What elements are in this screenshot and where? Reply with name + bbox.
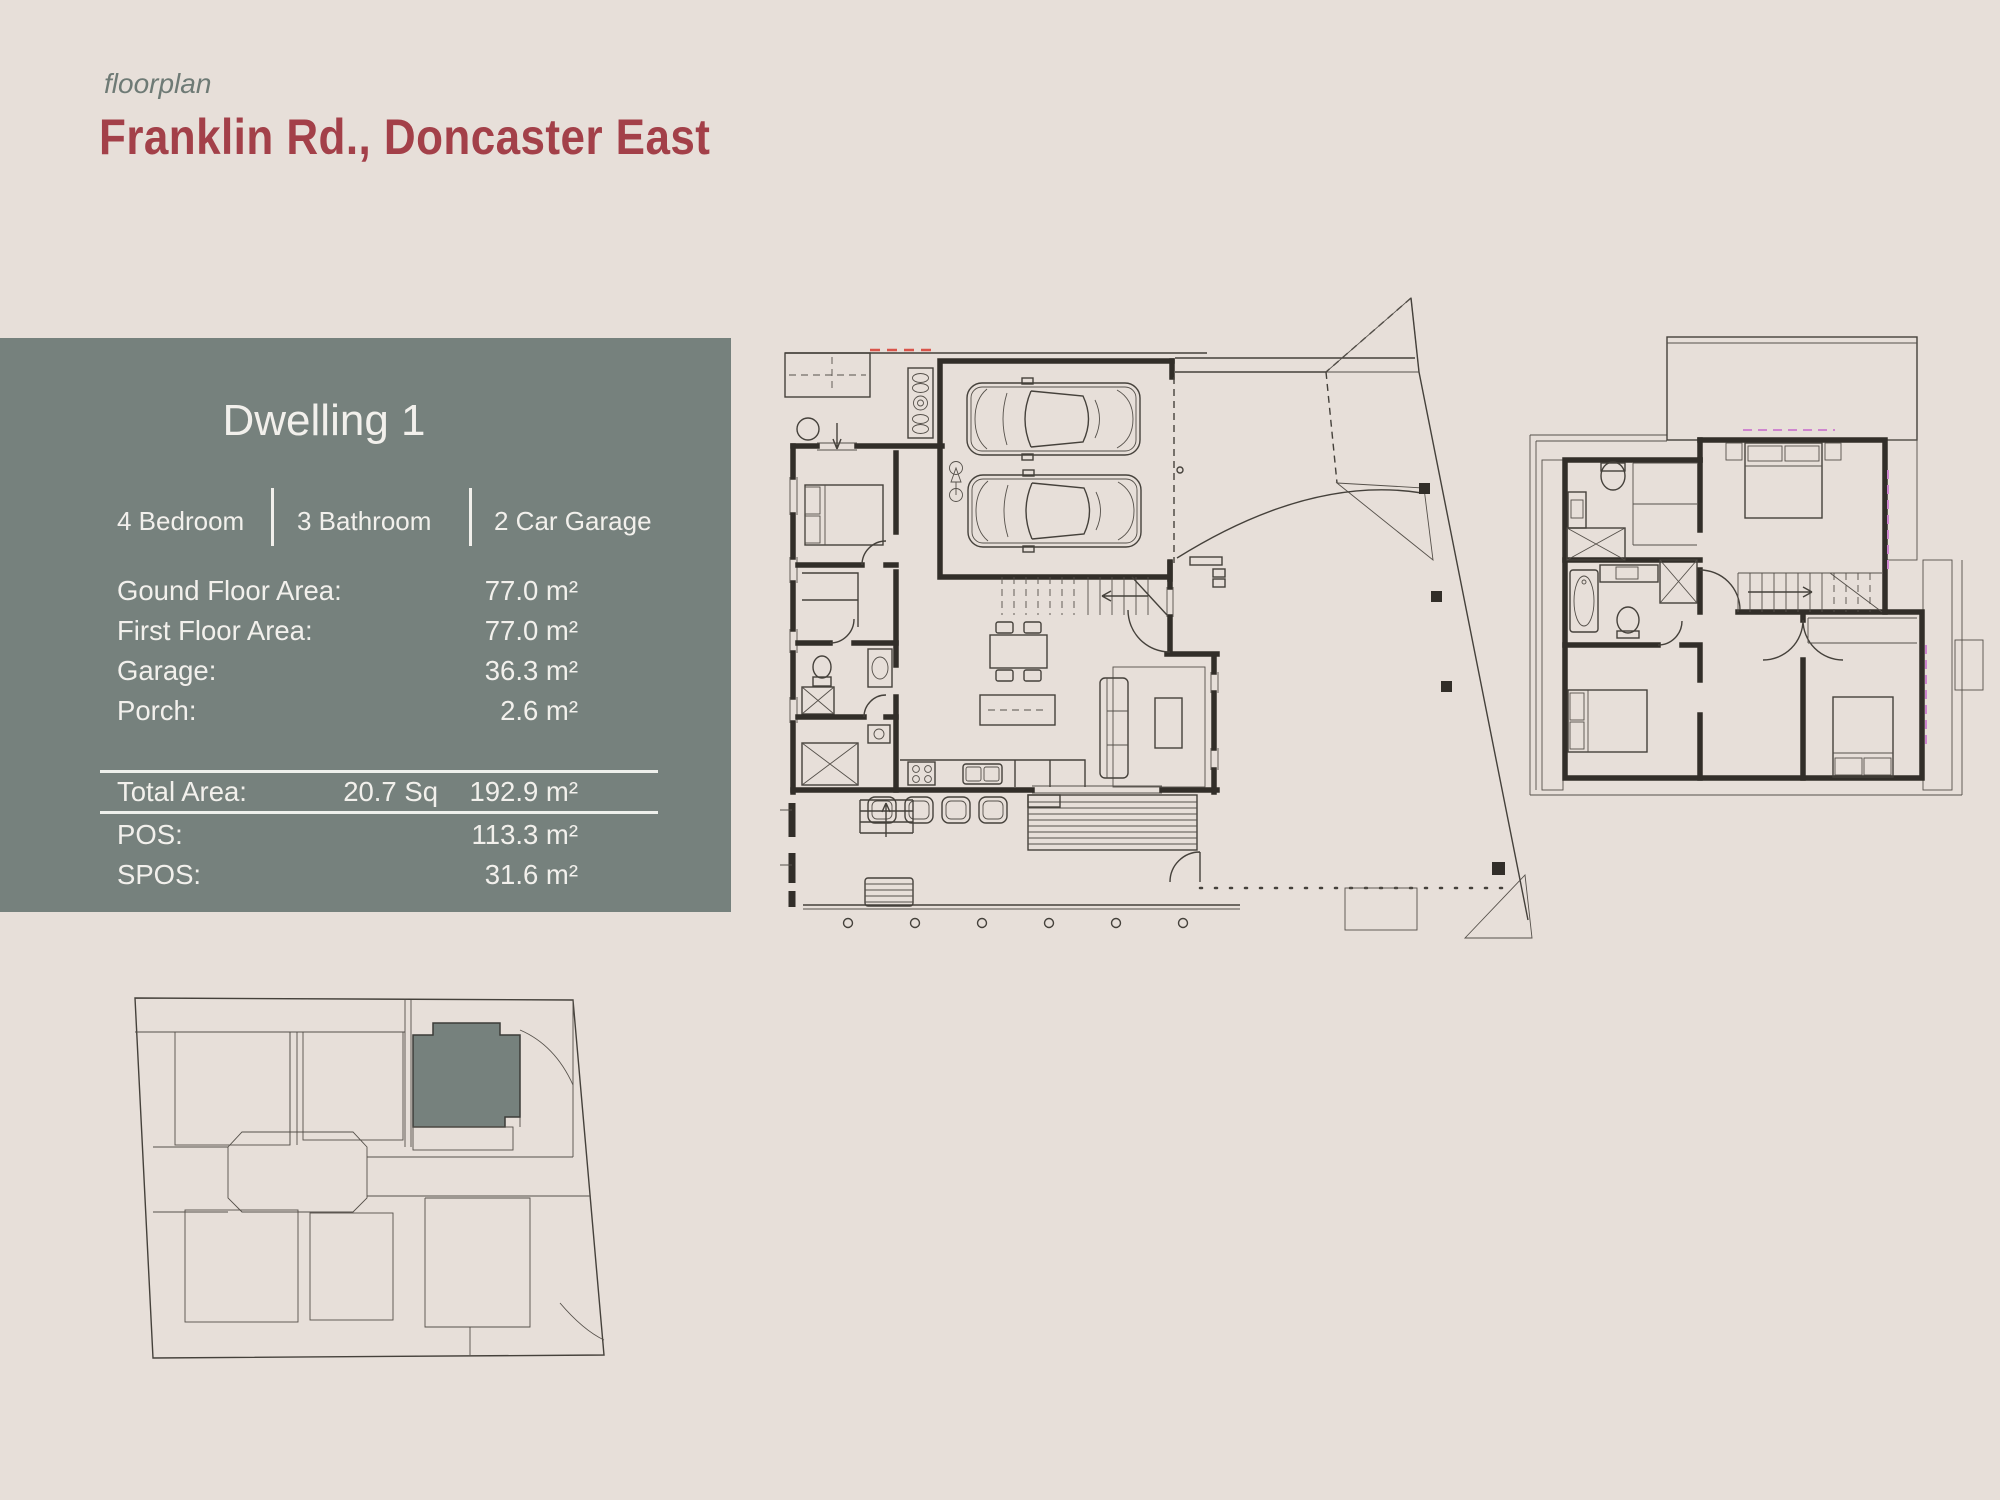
dwelling1-highlight <box>413 1023 520 1127</box>
spos-value: 31.6 m² <box>485 859 578 891</box>
sofa-icon <box>1100 678 1128 778</box>
total-label: Total Area: <box>117 776 247 807</box>
area-row: Porch: 2.6 m² <box>117 695 578 727</box>
entry-feature <box>908 368 933 438</box>
area-label: First Floor Area: <box>117 615 313 646</box>
area-row: Garage: 36.3 m² <box>117 655 578 687</box>
feature-divider <box>271 488 274 546</box>
dwelling-info-panel: Dwelling 1 4 Bedroom 3 Bathroom 2 Car Ga… <box>0 338 731 912</box>
toilet-icon <box>1617 607 1639 633</box>
rug <box>1113 667 1205 787</box>
roof-strip-right <box>1923 560 1952 790</box>
area-label: Gound Floor Area: <box>117 575 342 606</box>
bed-icon <box>1745 443 1822 518</box>
toilet-icon <box>813 656 831 678</box>
robe-upper <box>1633 463 1697 545</box>
total-squares: 20.7 Sq <box>343 776 438 808</box>
building-outline <box>425 1198 530 1355</box>
building-outline <box>175 1032 290 1145</box>
bed-icon <box>805 485 883 545</box>
dwelling-title: Dwelling 1 <box>0 396 648 446</box>
area-value: 77.0 m² <box>485 615 578 647</box>
area-value: 2.6 m² <box>500 695 578 727</box>
first-floor-plan <box>1530 337 1983 795</box>
easement-hatch-mid <box>1337 483 1433 560</box>
coffee-table <box>1155 698 1182 748</box>
bedroom <box>798 485 896 565</box>
area-label: Garage: <box>117 655 216 686</box>
roof-strip-left <box>1542 460 1563 790</box>
walk-in-robe <box>798 573 896 643</box>
toilet-icon <box>1601 462 1625 490</box>
living-room <box>1100 667 1205 787</box>
bedroom-3 <box>1808 618 1917 777</box>
dining-table <box>990 622 1047 681</box>
cooktop-icon <box>908 762 935 785</box>
entry-door-arc <box>1128 610 1170 652</box>
building-outline <box>185 1210 298 1322</box>
gate-arc <box>1170 852 1200 882</box>
feature-bathrooms: 3 Bathroom <box>297 506 431 537</box>
laundry <box>802 725 890 785</box>
driveway-curve <box>1177 490 1422 558</box>
dwelling1-porch <box>413 1127 513 1150</box>
bicycle-icon <box>950 462 963 502</box>
main-bathroom <box>1570 560 1697 638</box>
master-bedroom <box>1726 443 1841 518</box>
crossover-band <box>1175 358 1415 372</box>
porch <box>785 353 870 397</box>
kitchen <box>900 695 1085 787</box>
feature-bedrooms: 4 Bedroom <box>117 506 244 537</box>
total-value: 192.9 m² <box>469 776 578 808</box>
page-title: Franklin Rd., Doncaster East <box>99 108 710 166</box>
floorplan-sheet: floorplan Franklin Rd., Doncaster East D… <box>0 0 2000 1500</box>
pos-row: POS: 113.3 m² <box>117 819 578 851</box>
area-value: 36.3 m² <box>485 655 578 687</box>
garage <box>940 361 1183 579</box>
stairs <box>1002 577 1167 615</box>
bathroom <box>798 649 896 717</box>
ground-floor-plan <box>780 298 1532 938</box>
vanity <box>1600 565 1658 582</box>
sink-icon <box>963 764 1002 784</box>
bathtub-icon <box>1570 570 1598 632</box>
area-value: 77.0 m² <box>485 575 578 607</box>
deck <box>1028 795 1197 850</box>
bbq <box>865 878 913 906</box>
tree-icon <box>797 418 819 440</box>
site-boundary <box>135 998 604 1358</box>
bed-icon <box>1833 697 1893 777</box>
house-walls <box>790 423 1218 793</box>
building-outline <box>303 1032 403 1140</box>
area-row: First Floor Area: 77.0 m² <box>117 615 578 647</box>
rear-fence <box>803 905 1240 928</box>
crossover-paving <box>1345 888 1417 930</box>
side-boundary-line <box>1411 298 1528 920</box>
divider-line <box>100 770 658 773</box>
total-area-row: Total Area: 20.7 Sq 192.9 m² <box>117 776 578 808</box>
bed-icon <box>1568 690 1647 752</box>
pos-value: 113.3 m² <box>472 819 578 851</box>
site-plan <box>135 998 604 1358</box>
feature-divider <box>469 488 472 546</box>
building-outline <box>310 1213 393 1320</box>
spos-row: SPOS: 31.6 m² <box>117 859 578 891</box>
area-label: Porch: <box>117 695 196 726</box>
stairs-upper <box>1738 573 1882 612</box>
spos-label: SPOS: <box>117 859 201 890</box>
roof-deck <box>1667 337 1917 560</box>
easement-hatch-top <box>1326 298 1419 372</box>
pos-label: POS: <box>117 819 183 850</box>
bedroom-2 <box>1568 690 1647 752</box>
feature-garage: 2 Car Garage <box>494 506 652 537</box>
divider-line <box>100 811 658 814</box>
easement-hatch-bottom <box>1465 875 1532 938</box>
area-row: Gound Floor Area: 77.0 m² <box>117 575 578 607</box>
eyebrow-label: floorplan <box>104 68 211 100</box>
ensuite <box>1567 462 1625 560</box>
